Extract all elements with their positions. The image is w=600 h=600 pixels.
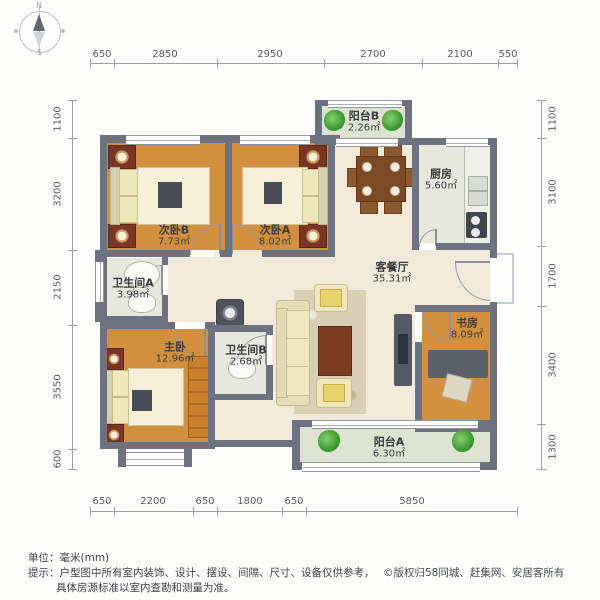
sofa-cushion-line (286, 366, 308, 367)
wall (415, 305, 497, 312)
tick (537, 306, 546, 307)
room-label-balcony-a: 阳台A 6.30㎡ (373, 435, 405, 460)
room-name: 次卧A (259, 223, 291, 236)
wall (162, 295, 168, 322)
entrance-threshold (512, 253, 514, 304)
entrance-door-leaf (455, 261, 490, 263)
floor-plan-image: N S 650 2850 2950 2700 2100 550 650 2200… (0, 0, 600, 600)
tick (537, 100, 546, 101)
dim-label: 3400 (548, 352, 559, 377)
wall (118, 449, 126, 467)
pillow (302, 169, 319, 196)
plate (390, 162, 400, 172)
wall (100, 442, 215, 449)
compass-icon: N S (12, 2, 68, 58)
room-area: 7.73㎡ (158, 237, 190, 249)
room-name: 阳台B (348, 109, 380, 122)
dim-label: 2700 (360, 49, 385, 60)
dim-label: 1700 (548, 263, 559, 288)
room-area: 3.98㎡ (112, 290, 154, 302)
bed-throw (158, 182, 182, 208)
wall (95, 250, 190, 257)
room-area: 5.60㎡ (425, 181, 457, 193)
window (95, 262, 104, 302)
dim-label: 5850 (399, 496, 424, 507)
sofa-cushion-line (286, 338, 308, 339)
room-label-master: 主卧 12.96㎡ (156, 340, 195, 365)
dimension-line-right (541, 100, 542, 470)
room-label-kitchen: 厨房 5.60㎡ (425, 167, 457, 192)
sofa (286, 310, 310, 396)
wall (292, 420, 300, 470)
wall (490, 305, 497, 470)
dimension-line-left (72, 100, 73, 470)
bed-headboard (318, 167, 328, 225)
dimension-line-bottom (90, 511, 518, 512)
wall (490, 138, 497, 258)
tick (537, 138, 546, 139)
tick (68, 325, 77, 326)
pillow (112, 370, 129, 397)
compass-south-label: S (37, 48, 42, 57)
room-name: 卫生间A (112, 276, 154, 289)
tick (114, 507, 115, 516)
footer-unit: 单位：毫米(mm) (28, 550, 109, 565)
room-name: 厨房 (425, 167, 457, 180)
wall (225, 135, 232, 257)
tick (306, 507, 307, 516)
entrance-threshold (497, 253, 513, 255)
room-area: 2.26㎡ (348, 123, 380, 135)
window (302, 462, 480, 472)
dim-label: 550 (498, 49, 517, 60)
dim-label: 3200 (53, 181, 64, 206)
room-label-bathroom-a: 卫生间A 3.98㎡ (112, 276, 154, 301)
footer-copyright: ©版权归58同城、赶集网、安居客所有 (383, 565, 564, 580)
dim-label: 1100 (548, 106, 559, 131)
room-name: 阳台A (373, 435, 405, 448)
coffee-table (318, 326, 352, 376)
plate (390, 186, 400, 196)
wall (208, 394, 272, 400)
window (336, 138, 398, 147)
tick (324, 59, 325, 68)
window (240, 135, 310, 145)
dim-label: 650 (92, 496, 111, 507)
dim-label: 650 (284, 496, 303, 507)
wall (208, 325, 272, 332)
wall (162, 252, 168, 265)
room-name: 书房 (451, 316, 483, 329)
tick (217, 59, 218, 68)
wall (436, 243, 497, 250)
pillow (119, 196, 138, 223)
floor-passage (215, 400, 292, 440)
tick (517, 507, 518, 516)
nightstand-lamp (104, 348, 124, 370)
dim-label: 650 (195, 496, 214, 507)
dim-label: 2950 (257, 49, 282, 60)
sink (468, 191, 488, 206)
dim-label: 1100 (53, 106, 64, 131)
door-leaf (161, 265, 163, 295)
dim-label: 650 (92, 49, 111, 60)
room-label-bedroom-a: 次卧A 8.02㎡ (259, 223, 291, 248)
dimension-line-top (90, 63, 518, 64)
room-name: 次卧B (158, 223, 190, 236)
bed-throw (132, 390, 152, 411)
room-area: 8.09㎡ (451, 330, 483, 342)
dim-label: 2850 (152, 49, 177, 60)
room-label-balcony-b: 阳台B 2.26㎡ (348, 109, 380, 134)
wall (266, 325, 273, 335)
plate (362, 186, 372, 196)
tv (398, 334, 408, 364)
window (446, 138, 488, 147)
compass-dot-west (14, 29, 18, 33)
dim-label: 1300 (548, 434, 559, 459)
compass-dot-east (61, 29, 65, 33)
armchair-seat (320, 289, 342, 307)
tick (68, 138, 77, 139)
dim-label: 2200 (140, 496, 165, 507)
wall (412, 138, 419, 250)
dim-label: 1800 (237, 496, 262, 507)
wall (415, 305, 422, 312)
floor-corridor (168, 257, 215, 322)
room-area: 8.02㎡ (259, 237, 291, 249)
wall (262, 250, 335, 257)
dim-label: 3550 (53, 374, 64, 399)
tick (537, 246, 546, 247)
pillow (119, 169, 138, 196)
tick (217, 507, 218, 516)
pillow (112, 397, 129, 424)
washing-machine (216, 299, 244, 327)
tick (90, 59, 91, 68)
wardrobe (188, 356, 210, 438)
wall (415, 342, 422, 432)
room-label-bathroom-b: 卫生间B 2.68㎡ (225, 343, 266, 368)
tick (537, 424, 546, 425)
bed-throw (264, 182, 282, 204)
room-name: 主卧 (156, 340, 195, 353)
footer-tip2: 具体房源标准以室内查勘和测量为准。 (56, 580, 235, 595)
tick (114, 59, 115, 68)
room-name: 客餐厅 (373, 260, 412, 273)
footer-tip: 提示：户型图中所有室内装饰、设计、摆设、间隔、尺寸、设备仅供参考， (28, 565, 375, 580)
compass-needle-north (33, 14, 45, 31)
room-label-study: 书房 8.09㎡ (451, 316, 483, 341)
dim-label: 2100 (447, 49, 472, 60)
compass-needle-south (33, 32, 45, 47)
wall (405, 100, 412, 145)
room-label-bedroom-b: 次卧B 7.73㎡ (158, 223, 190, 248)
wall (184, 449, 192, 467)
nightstand-lamp (299, 145, 327, 169)
dim-label: 2150 (53, 274, 64, 299)
nightstand-lamp (299, 224, 327, 248)
sink (468, 176, 488, 191)
compass-north-label: N (36, 1, 42, 10)
tick (68, 250, 77, 251)
room-area: 6.30㎡ (373, 449, 405, 461)
tick (68, 100, 77, 101)
door-leaf (204, 329, 206, 359)
window (328, 100, 402, 108)
bay-window (126, 452, 184, 466)
dim-label: 3100 (548, 179, 559, 204)
tick (68, 469, 77, 470)
window (126, 135, 200, 145)
room-name: 卫生间B (225, 343, 266, 356)
stove-burner (471, 216, 480, 225)
stove-burner (471, 228, 480, 237)
pillow (302, 196, 319, 223)
room-label-living: 客餐厅 35.31㎡ (373, 260, 412, 285)
desk (428, 350, 488, 378)
wall (266, 365, 273, 400)
entrance-threshold (497, 302, 513, 304)
entrance-opening (490, 258, 497, 302)
tick (68, 449, 77, 450)
tick (193, 507, 194, 516)
dim-label: 600 (53, 449, 64, 468)
wall (315, 100, 322, 145)
tick (282, 507, 283, 516)
wall (208, 322, 215, 449)
wall (328, 135, 335, 257)
wall (208, 440, 300, 447)
nightstand-lamp (108, 145, 136, 169)
room-area: 12.96㎡ (156, 354, 195, 366)
room-area: 35.31㎡ (373, 274, 412, 286)
window (312, 420, 478, 429)
armchair-seat (323, 384, 345, 402)
tick (498, 59, 499, 68)
plate (362, 162, 372, 172)
tick (537, 469, 546, 470)
wall (100, 322, 175, 329)
tick (517, 59, 518, 68)
tick (422, 59, 423, 68)
room-area: 2.68㎡ (225, 357, 266, 369)
tick (90, 507, 91, 516)
nightstand-lamp (108, 224, 136, 248)
